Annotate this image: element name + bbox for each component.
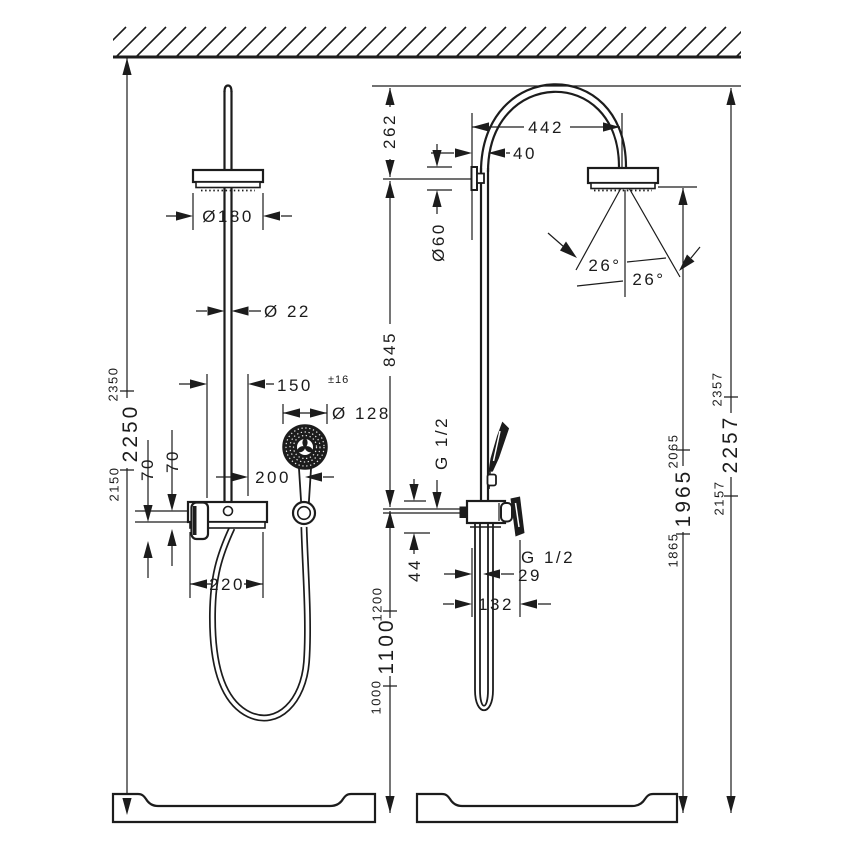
dim-hose-offset: 29	[518, 566, 542, 585]
arrowhead	[167, 529, 176, 546]
arrowhead	[190, 579, 207, 588]
arrowhead	[409, 533, 418, 550]
riser-pipe-front	[225, 86, 232, 503]
arrowhead	[455, 569, 472, 578]
height-1100: 1100	[375, 617, 398, 674]
arrowhead	[231, 472, 248, 481]
dim-mixer-depth: 132	[478, 595, 514, 614]
shower-drawing-svg: Ø180 Ø 22 150 ±16 Ø 128 200 70 70 220 23…	[0, 0, 850, 850]
dim-inlet-thread: G 1/2	[432, 416, 451, 470]
arrowhead	[143, 541, 152, 558]
dim-connection-width: 150	[277, 376, 313, 395]
dim-inlet-drop: 44	[405, 558, 424, 582]
arrowhead	[248, 379, 265, 388]
arrowhead	[385, 490, 394, 507]
height-2357: 2357	[710, 372, 725, 407]
dim-arc-reach: 442	[528, 118, 564, 137]
arrowhead	[409, 484, 418, 501]
dim-head-to-supply: 845	[380, 331, 399, 367]
dim-spray-angle-left: 26°	[588, 256, 621, 275]
height-2350: 2350	[106, 367, 121, 402]
shower-tray-front	[113, 794, 375, 822]
arrowhead	[472, 122, 489, 131]
arrowhead	[122, 58, 131, 75]
height-2250: 2250	[119, 404, 142, 463]
arrowhead	[678, 188, 687, 205]
hand-shower-side	[488, 423, 509, 490]
dim-head-diameter: Ø180	[202, 207, 254, 226]
labels: Ø180 Ø 22 150 ±16 Ø 128 200 70 70 220 23…	[106, 113, 743, 714]
overhead-shower-side	[588, 168, 658, 191]
dim-mixer-width: 220	[209, 575, 245, 594]
dim-arc-height: 262	[380, 113, 399, 149]
dim-flange-diameter: Ø60	[429, 222, 448, 262]
hand-shower-front	[283, 425, 327, 508]
mixer-side	[460, 497, 525, 537]
height-1200: 1200	[370, 587, 385, 622]
arrowhead	[678, 796, 687, 813]
arrowhead	[143, 505, 152, 522]
arrowhead	[432, 492, 441, 509]
arrowhead	[246, 579, 263, 588]
arrowhead	[176, 211, 193, 220]
arrowhead	[726, 796, 735, 813]
dim-pipe-diameter: Ø 22	[264, 302, 311, 321]
wall-bracket-side	[472, 167, 485, 190]
arrowhead	[283, 408, 300, 417]
arrowhead	[263, 211, 280, 220]
ceiling-hatch	[96, 27, 766, 57]
overhead-shower-front	[193, 170, 263, 191]
dim-holder-offset: 200	[255, 468, 291, 487]
arrowhead	[455, 599, 472, 608]
arrowhead	[385, 181, 394, 198]
arrowhead	[190, 379, 207, 388]
arrowhead	[432, 190, 441, 207]
dim-connection-tolerance: ±16	[328, 374, 349, 386]
height-1865: 1865	[666, 533, 681, 568]
height-2065: 2065	[666, 434, 681, 469]
shower-tray-side	[417, 794, 677, 822]
arrowhead	[385, 796, 394, 813]
height-1965: 1965	[672, 469, 695, 528]
side-view	[417, 84, 677, 822]
front-view	[113, 86, 375, 823]
arrowhead	[385, 160, 394, 177]
height-2257: 2257	[719, 415, 742, 474]
arrowhead	[208, 306, 225, 315]
dim-wall-offset: 40	[513, 144, 537, 163]
arrowhead	[167, 494, 176, 511]
arrowhead	[483, 569, 500, 578]
arrowhead	[726, 88, 735, 105]
height-2157: 2157	[712, 481, 727, 516]
dim-offset-70-inner: 70	[163, 449, 182, 473]
arrowhead	[432, 150, 441, 167]
height-1000: 1000	[369, 680, 384, 715]
technical-drawing-canvas: Ø180 Ø 22 150 ±16 Ø 128 200 70 70 220 23…	[0, 0, 850, 850]
arrowhead	[520, 599, 537, 608]
dim-outlet-thread: G 1/2	[521, 548, 575, 567]
dim-hand-shower-diameter: Ø 128	[332, 404, 391, 423]
arrowhead	[310, 408, 327, 417]
height-2150: 2150	[107, 467, 122, 502]
arrowhead	[232, 306, 249, 315]
arrowhead	[385, 88, 394, 105]
dim-spray-angle-right: 26°	[632, 270, 665, 289]
hose-holder-front	[293, 502, 315, 524]
arrowhead	[455, 148, 472, 157]
shower-hose-front	[212, 527, 307, 718]
shower-hose-side	[475, 523, 493, 710]
